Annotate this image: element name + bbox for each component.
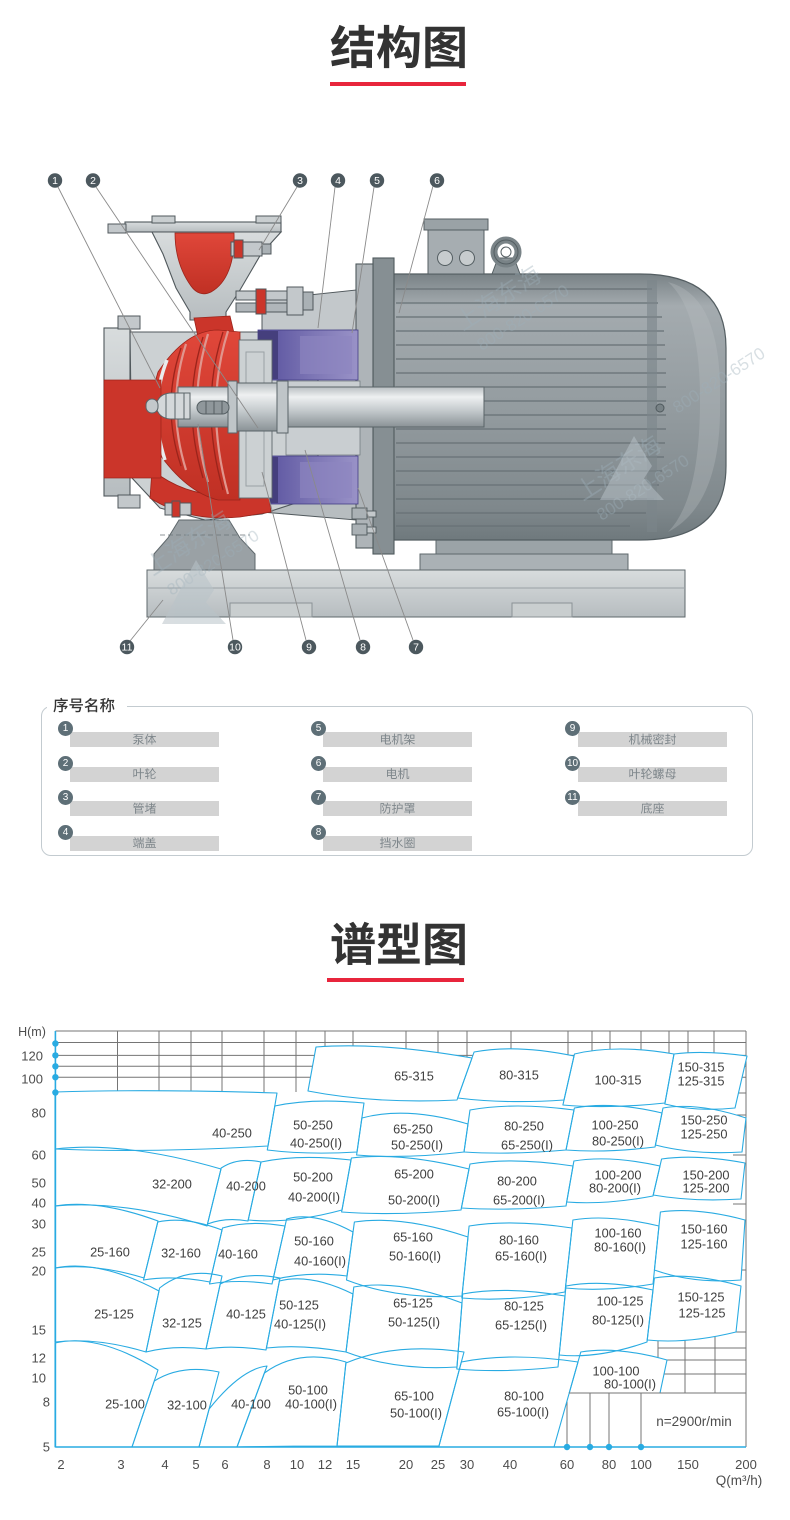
svg-text:100-250: 100-250: [592, 1118, 639, 1133]
svg-text:10: 10: [290, 1457, 304, 1472]
svg-text:65-100: 65-100: [394, 1389, 434, 1404]
svg-text:2: 2: [57, 1457, 64, 1472]
svg-text:100-160: 100-160: [595, 1226, 642, 1241]
svg-text:80: 80: [602, 1457, 616, 1472]
svg-text:6: 6: [221, 1457, 228, 1472]
svg-text:50-125: 50-125: [279, 1298, 319, 1313]
svg-text:40-100: 40-100: [231, 1397, 271, 1412]
svg-text:65-160(I): 65-160(I): [495, 1249, 547, 1264]
svg-text:125-160: 125-160: [681, 1237, 728, 1252]
svg-text:150: 150: [677, 1457, 699, 1472]
svg-text:6: 6: [434, 175, 440, 187]
svg-text:40: 40: [32, 1196, 46, 1211]
svg-text:125-315: 125-315: [678, 1074, 725, 1089]
svg-text:125-200: 125-200: [683, 1181, 730, 1196]
svg-text:150-160: 150-160: [681, 1222, 728, 1237]
svg-text:50-200(I): 50-200(I): [388, 1193, 440, 1208]
svg-text:50-125(I): 50-125(I): [388, 1315, 440, 1330]
svg-text:80-160(I): 80-160(I): [594, 1240, 646, 1255]
svg-text:100-315: 100-315: [595, 1073, 642, 1088]
svg-text:50-250: 50-250: [293, 1118, 333, 1133]
svg-text:25: 25: [32, 1245, 46, 1260]
svg-text:12: 12: [318, 1457, 332, 1472]
svg-text:80-100: 80-100: [504, 1389, 544, 1404]
svg-text:65-125(I): 65-125(I): [495, 1318, 547, 1333]
svg-text:125-125: 125-125: [679, 1306, 726, 1321]
svg-text:50-160(I): 50-160(I): [389, 1249, 441, 1264]
svg-text:80-100(I): 80-100(I): [604, 1377, 656, 1392]
svg-text:Q(m³/h): Q(m³/h): [716, 1473, 763, 1488]
svg-text:80: 80: [32, 1106, 46, 1121]
svg-text:80-200: 80-200: [497, 1174, 537, 1189]
svg-text:32-160: 32-160: [161, 1246, 201, 1261]
svg-text:40-250: 40-250: [212, 1126, 252, 1141]
svg-text:8: 8: [263, 1457, 270, 1472]
svg-text:40-100(I): 40-100(I): [285, 1397, 337, 1412]
svg-text:65-100(I): 65-100(I): [497, 1405, 549, 1420]
svg-text:n=2900r/min: n=2900r/min: [656, 1414, 731, 1429]
svg-text:60: 60: [560, 1457, 574, 1472]
svg-text:125-250: 125-250: [681, 1127, 728, 1142]
svg-text:150-250: 150-250: [681, 1113, 728, 1128]
svg-text:65-250: 65-250: [393, 1122, 433, 1137]
svg-text:15: 15: [32, 1323, 46, 1338]
svg-text:4: 4: [335, 175, 341, 187]
svg-text:50-100(I): 50-100(I): [390, 1406, 442, 1421]
svg-text:32-200: 32-200: [152, 1177, 192, 1192]
svg-text:10: 10: [32, 1371, 46, 1386]
svg-text:100: 100: [630, 1457, 652, 1472]
svg-text:80-250: 80-250: [504, 1119, 544, 1134]
svg-text:9: 9: [306, 642, 312, 654]
svg-text:65-200(I): 65-200(I): [493, 1193, 545, 1208]
svg-text:3: 3: [297, 175, 303, 187]
svg-text:40-250(I): 40-250(I): [290, 1136, 342, 1151]
svg-text:65-250(I): 65-250(I): [501, 1138, 553, 1153]
svg-text:65-200: 65-200: [394, 1167, 434, 1182]
svg-text:7: 7: [413, 642, 419, 654]
svg-text:65-160: 65-160: [393, 1230, 433, 1245]
svg-text:40: 40: [503, 1457, 517, 1472]
svg-text:100: 100: [21, 1072, 43, 1087]
svg-text:50-100: 50-100: [288, 1383, 328, 1398]
svg-text:80-125: 80-125: [504, 1299, 544, 1314]
svg-text:4: 4: [161, 1457, 168, 1472]
svg-text:5: 5: [374, 175, 380, 187]
svg-text:25-160: 25-160: [90, 1245, 130, 1260]
svg-text:32-100: 32-100: [167, 1398, 207, 1413]
svg-text:80-250(I): 80-250(I): [592, 1134, 644, 1149]
svg-text:80-125(I): 80-125(I): [592, 1313, 644, 1328]
svg-text:H(m): H(m): [18, 1025, 46, 1039]
svg-text:80-200(I): 80-200(I): [589, 1181, 641, 1196]
svg-text:80-160: 80-160: [499, 1233, 539, 1248]
svg-text:80-315: 80-315: [499, 1068, 539, 1083]
svg-text:50-160: 50-160: [294, 1234, 334, 1249]
svg-text:12: 12: [32, 1351, 46, 1366]
svg-text:120: 120: [21, 1049, 43, 1064]
svg-text:40-160(I): 40-160(I): [294, 1254, 346, 1269]
svg-text:40-160: 40-160: [218, 1247, 258, 1262]
svg-text:65-125: 65-125: [393, 1296, 433, 1311]
svg-text:40-200: 40-200: [226, 1179, 266, 1194]
svg-text:30: 30: [460, 1457, 474, 1472]
svg-text:25: 25: [431, 1457, 445, 1472]
svg-text:30: 30: [32, 1217, 46, 1232]
svg-text:5: 5: [192, 1457, 199, 1472]
svg-text:150-125: 150-125: [678, 1290, 725, 1305]
svg-text:11: 11: [122, 642, 133, 654]
svg-text:2: 2: [90, 175, 96, 187]
svg-text:20: 20: [399, 1457, 413, 1472]
svg-text:65-315: 65-315: [394, 1069, 434, 1084]
svg-text:10: 10: [229, 642, 241, 654]
svg-text:40-200(I): 40-200(I): [288, 1190, 340, 1205]
svg-text:5: 5: [43, 1440, 50, 1455]
svg-text:200: 200: [735, 1457, 757, 1472]
svg-text:60: 60: [32, 1148, 46, 1163]
svg-text:40-125(I): 40-125(I): [274, 1317, 326, 1332]
svg-text:15: 15: [346, 1457, 360, 1472]
svg-text:25-100: 25-100: [105, 1397, 145, 1412]
svg-text:40-125: 40-125: [226, 1307, 266, 1322]
svg-text:32-125: 32-125: [162, 1316, 202, 1331]
svg-text:100-125: 100-125: [597, 1294, 644, 1309]
svg-text:1: 1: [52, 175, 58, 187]
svg-text:3: 3: [117, 1457, 124, 1472]
svg-text:150-315: 150-315: [678, 1060, 725, 1075]
svg-text:50-200: 50-200: [293, 1170, 333, 1185]
svg-text:20: 20: [32, 1264, 46, 1279]
svg-text:8: 8: [43, 1395, 50, 1410]
svg-text:50: 50: [32, 1176, 46, 1191]
svg-text:8: 8: [360, 642, 366, 654]
svg-text:50-250(I): 50-250(I): [391, 1138, 443, 1153]
svg-text:25-125: 25-125: [94, 1307, 134, 1322]
